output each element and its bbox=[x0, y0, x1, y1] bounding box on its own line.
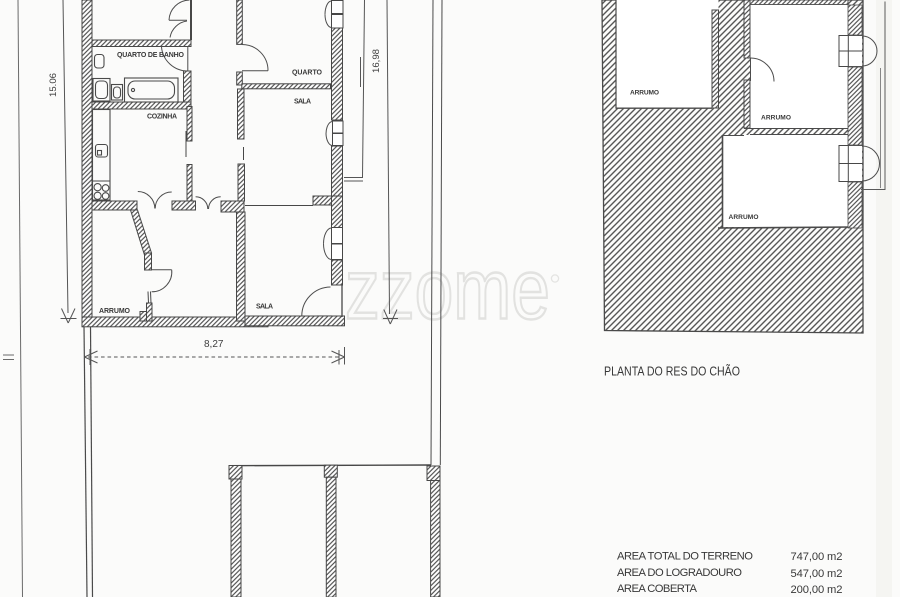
svg-text:SALA: SALA bbox=[294, 99, 311, 106]
svg-text:15.06: 15.06 bbox=[48, 73, 59, 97]
svg-text:8,27: 8,27 bbox=[204, 339, 224, 350]
svg-text:ARRUMO: ARRUMO bbox=[761, 115, 791, 122]
svg-text:ARRUMO: ARRUMO bbox=[99, 308, 131, 315]
svg-text:ARRUMO: ARRUMO bbox=[630, 90, 659, 97]
svg-text:16,98: 16,98 bbox=[371, 49, 382, 73]
svg-text:ARRUMO: ARRUMO bbox=[729, 214, 759, 221]
svg-text:747,00 m2: 747,00 m2 bbox=[791, 551, 843, 563]
svg-text:547,00 m2: 547,00 m2 bbox=[791, 568, 843, 580]
svg-text:AREA COBERTA: AREA COBERTA bbox=[617, 583, 698, 595]
svg-text:200,00 m2: 200,00 m2 bbox=[791, 584, 843, 596]
svg-text:AREA TOTAL DO TERRENO: AREA TOTAL DO TERRENO bbox=[617, 551, 753, 563]
svg-text:zzome: zzome bbox=[345, 243, 550, 338]
svg-text:AREA DO LOGRADOURO: AREA DO LOGRADOURO bbox=[617, 567, 742, 579]
svg-text:QUARTO: QUARTO bbox=[292, 70, 323, 77]
svg-text:SALA: SALA bbox=[256, 304, 273, 311]
svg-text:PLANTA DO RES DO CHÃO: PLANTA DO RES DO CHÃO bbox=[604, 365, 740, 379]
svg-text:QUARTO DE BANHO: QUARTO DE BANHO bbox=[117, 52, 185, 59]
svg-text:COZINHA: COZINHA bbox=[147, 114, 177, 121]
